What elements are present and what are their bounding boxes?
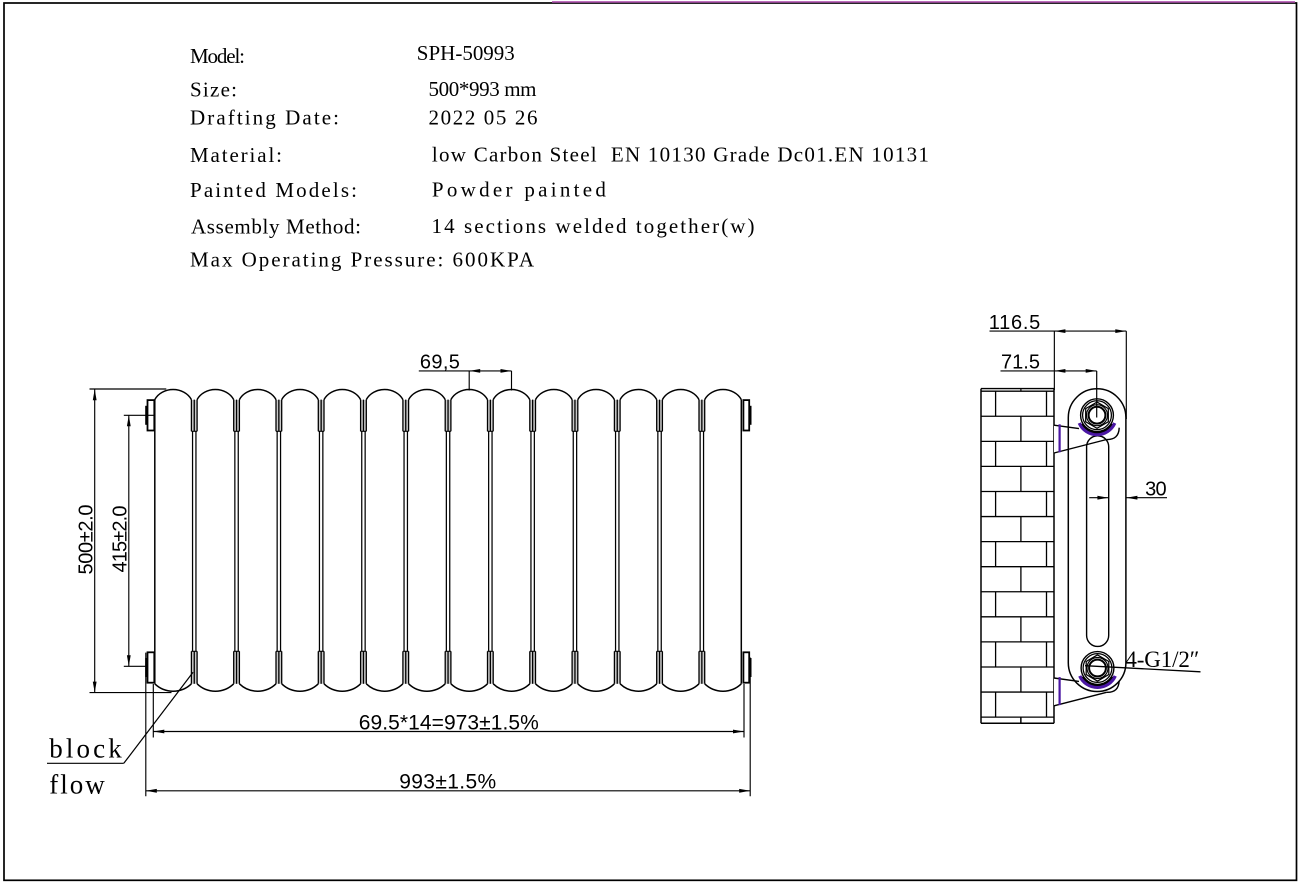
svg-text:Max Operating Pressure: 600KPA: Max Operating Pressure: 600KPA bbox=[190, 248, 535, 272]
svg-text:4-G1/2″: 4-G1/2″ bbox=[1125, 647, 1199, 672]
svg-text:2022 05 26: 2022 05 26 bbox=[429, 105, 538, 129]
svg-text:500*993 mm: 500*993 mm bbox=[429, 77, 537, 101]
svg-text:SPH-50993: SPH-50993 bbox=[417, 41, 515, 65]
svg-text:71.5: 71.5 bbox=[1001, 352, 1040, 374]
svg-text:Painted Models:: Painted Models: bbox=[190, 178, 357, 202]
svg-text:Drafting Date:: Drafting Date: bbox=[190, 106, 339, 130]
svg-text:116.5: 116.5 bbox=[989, 312, 1041, 334]
svg-text:993±1.5%: 993±1.5% bbox=[399, 771, 496, 794]
svg-text:415±2.0: 415±2.0 bbox=[109, 506, 131, 573]
svg-text:Assembly Method:: Assembly Method: bbox=[191, 214, 361, 238]
svg-text:Model:: Model: bbox=[190, 44, 245, 68]
svg-text:14 sections welded together(w): 14 sections welded together(w) bbox=[432, 214, 755, 238]
svg-text:Powder painted: Powder painted bbox=[432, 178, 607, 202]
svg-text:Size:: Size: bbox=[190, 77, 237, 101]
svg-text:69,5: 69,5 bbox=[420, 351, 460, 373]
svg-text:500±2.0: 500±2.0 bbox=[75, 505, 97, 575]
svg-text:low Carbon Steel EN 10130 Gra: low Carbon Steel EN 10130 Grade Dc01.EN … bbox=[432, 143, 929, 167]
svg-text:flow: flow bbox=[49, 770, 105, 800]
svg-text:Material:: Material: bbox=[190, 143, 282, 167]
svg-text:block: block bbox=[49, 734, 122, 764]
svg-text:30: 30 bbox=[1145, 478, 1167, 500]
svg-text:69.5*14=973±1.5%: 69.5*14=973±1.5% bbox=[359, 711, 539, 734]
